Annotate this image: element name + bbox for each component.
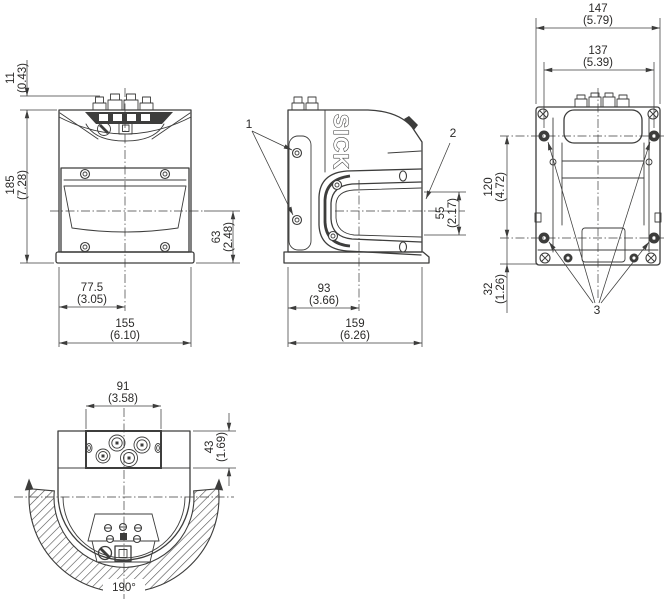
- rear-bottom-cover: [582, 228, 625, 262]
- dim-overall-width-mm: 147: [588, 3, 607, 15]
- dim-total-width-inch: (6.10): [110, 330, 140, 342]
- scan-field-arrow-left: [25, 479, 34, 491]
- drawing-canvas: 11 (0.43) 185 (7.28) 63 (2.48) 77.5 (3.0…: [0, 0, 668, 600]
- dim-total-height-inch: (7.28): [17, 170, 29, 200]
- led-notch: [404, 116, 418, 130]
- dim-rear-to-scan-axis-mm: 93: [318, 283, 331, 295]
- dim-window-to-bottom-inch: (2.48): [223, 222, 235, 252]
- dim-hole-spacing-x-inch: (5.39): [583, 57, 613, 69]
- dim-hole-spacing-x-mm: 137: [588, 45, 607, 57]
- dim-window-to-bottom-mm: 63: [211, 231, 223, 244]
- side-top-connectors: [292, 97, 318, 110]
- rear-top-cover: [564, 110, 642, 143]
- top-cap-detail: [88, 514, 159, 562]
- dim-cap-height: 11 (0.43): [5, 60, 100, 96]
- dim-hole-spacing-y: 120 (4.72): [483, 136, 507, 238]
- callout-1-label: 1: [246, 117, 253, 131]
- side-view-device-outline: SICK: [284, 97, 465, 311]
- dim-edge-to-center-inch: (3.05): [77, 294, 107, 306]
- dim-total-depth: 159 (6.26): [288, 267, 422, 347]
- rear-top-connectors: [575, 93, 629, 107]
- dim-total-depth-mm: 159: [345, 318, 364, 330]
- top-connector-panel: [86, 431, 161, 468]
- dim-connector-width-inch: (3.58): [108, 393, 138, 405]
- side-view: SICK 55 (2.17) 93 (3.66) 159 (6.26): [246, 97, 466, 347]
- dimensional-drawing-sheet: 11 (0.43) 185 (7.28) 63 (2.48) 77.5 (3.0…: [0, 0, 668, 600]
- dim-hole-spacing-x: 137 (5.39): [544, 45, 654, 128]
- dim-connector-width-mm: 91: [117, 381, 130, 393]
- callout-fixing-screws: 1: [246, 117, 293, 215]
- dim-hole-to-bottom-mm: 32: [483, 283, 495, 296]
- dim-window-to-bottom: 63 (2.48): [196, 211, 240, 263]
- rear-view: 147 (5.79) 137 (5.39) 120 (4.72) 32 (1.2…: [483, 3, 664, 317]
- dim-hole-to-bottom: 32 (1.26): [483, 238, 538, 313]
- dim-cap-height-mm: 11: [5, 72, 17, 84]
- dim-total-depth-inch: (6.26): [340, 330, 370, 342]
- dim-overall-width-inch: (5.79): [583, 15, 613, 27]
- callout-mounting-holes: 3: [548, 142, 650, 317]
- dim-edge-to-center-mm: 77.5: [81, 282, 103, 294]
- dim-rear-to-scan-axis-inch: (3.66): [309, 295, 339, 307]
- dim-window-height-inch: (2.17): [447, 198, 459, 228]
- dim-connector-depth-mm: 43: [204, 441, 216, 454]
- dim-hole-spacing-y-mm: 120: [483, 177, 495, 196]
- dim-hole-to-bottom-inch: (1.26): [495, 274, 507, 304]
- callout-front-window: 2: [426, 126, 457, 199]
- dim-connector-depth-inch: (1.69): [216, 432, 228, 462]
- front-view-device-outline: [50, 88, 203, 311]
- callout-2-label: 2: [450, 126, 457, 140]
- scan-field-arrow-right: [215, 479, 224, 491]
- side-window-seal: [319, 169, 421, 255]
- dim-window-height: 55 (2.17): [424, 192, 466, 235]
- front-view: 11 (0.43) 185 (7.28) 63 (2.48) 77.5 (3.0…: [5, 60, 240, 347]
- dim-connector-depth: 43 (1.69): [193, 413, 236, 486]
- callout-3-label: 3: [594, 303, 601, 317]
- dim-cap-height-inch: (0.43): [17, 63, 29, 93]
- dim-connector-width: 91 (3.58): [86, 381, 161, 429]
- rear-view-device-outline: [500, 88, 664, 298]
- dim-hole-spacing-y-inch: (4.72): [495, 172, 507, 202]
- dim-total-height: 185 (7.28): [5, 110, 57, 263]
- sick-logo: SICK: [329, 114, 352, 170]
- dim-total-height-mm: 185: [5, 175, 17, 194]
- rear-mounting-screws: [539, 131, 660, 244]
- top-view: 190°: [14, 381, 236, 599]
- dim-total-width-mm: 155: [115, 318, 134, 330]
- front-top-connectors: [93, 94, 153, 110]
- dim-window-height-mm: 55: [435, 207, 447, 220]
- top-display-window: [115, 546, 131, 561]
- side-rear-bracket: [289, 136, 311, 250]
